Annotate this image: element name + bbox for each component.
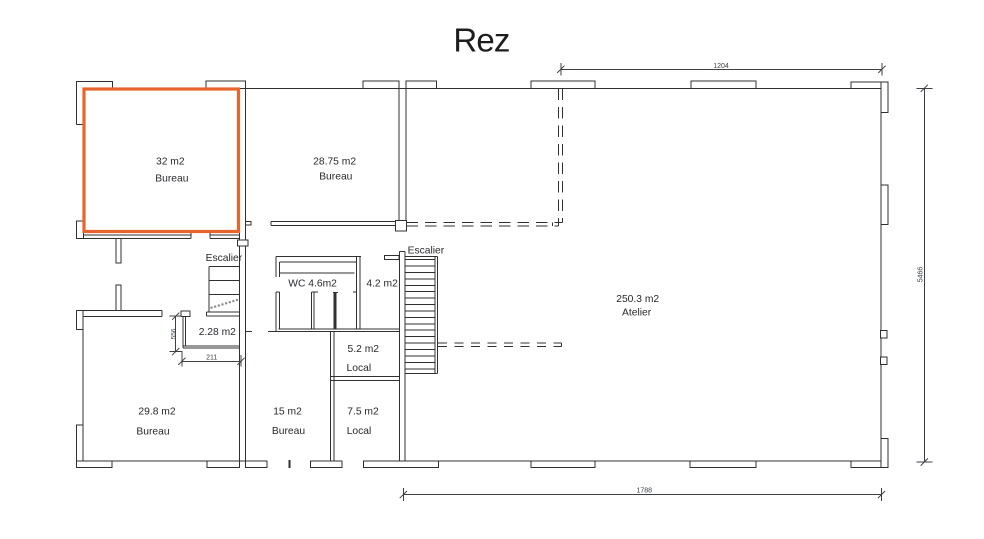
svg-text:Atelier: Atelier [622,308,652,319]
svg-text:Local: Local [346,363,371,374]
svg-text:556: 556 [170,328,177,339]
svg-text:Escalier: Escalier [408,245,445,256]
svg-text:Bureau: Bureau [319,172,352,183]
svg-text:28.75 m2: 28.75 m2 [313,157,356,168]
svg-text:Local: Local [347,426,372,437]
svg-text:5466: 5466 [918,267,925,283]
svg-text:Bureau: Bureau [272,426,305,437]
svg-text:WC 4.6m2: WC 4.6m2 [288,278,337,289]
svg-text:5.2 m2: 5.2 m2 [348,344,380,355]
svg-text:7.5 m2: 7.5 m2 [347,407,379,418]
svg-text:2.28 m2: 2.28 m2 [199,327,236,338]
svg-text:15 m2: 15 m2 [273,407,302,418]
svg-text:250.3 m2: 250.3 m2 [616,294,659,305]
svg-text:Bureau: Bureau [136,426,169,437]
svg-text:Rez: Rez [453,22,509,59]
svg-text:211: 211 [206,354,217,361]
svg-text:1204: 1204 [713,63,729,70]
svg-text:Bureau: Bureau [155,174,188,185]
svg-text:Escalier: Escalier [206,253,243,264]
svg-text:4.2 m2: 4.2 m2 [366,278,398,289]
svg-text:1788: 1788 [637,488,653,495]
svg-text:29.8 m2: 29.8 m2 [138,407,175,418]
svg-text:32 m2: 32 m2 [156,157,185,168]
